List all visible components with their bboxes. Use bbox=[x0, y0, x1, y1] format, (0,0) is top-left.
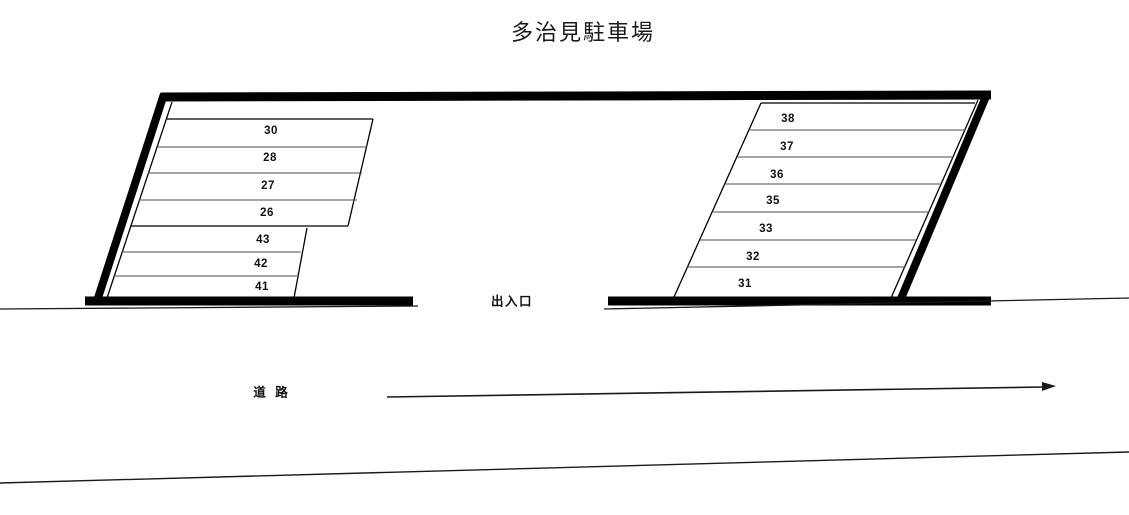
top-wall bbox=[161, 95, 991, 97]
left-block-narrow-right-edge bbox=[294, 228, 307, 298]
left-wall bbox=[97, 94, 164, 301]
stall-label: 36 bbox=[770, 169, 784, 181]
road-direction-arrow bbox=[387, 382, 1056, 397]
stall-label: 30 bbox=[264, 125, 278, 137]
stall-label: 28 bbox=[263, 152, 277, 164]
arrow-head-icon bbox=[1042, 382, 1056, 391]
road-bottom-line bbox=[0, 452, 1129, 483]
road-edge-line-left bbox=[0, 306, 418, 309]
stall-label: 38 bbox=[781, 113, 795, 125]
stall-label: 42 bbox=[254, 258, 268, 270]
right-wall bbox=[900, 94, 987, 301]
left-stall-dividers bbox=[114, 147, 367, 276]
arrow-shaft bbox=[387, 387, 1045, 397]
stall-label: 35 bbox=[766, 195, 780, 207]
stall-label: 27 bbox=[261, 180, 275, 192]
stall-label: 41 bbox=[255, 281, 269, 293]
stall-label: 26 bbox=[260, 207, 274, 219]
road-label: 道 路 bbox=[253, 382, 290, 401]
stall-label: 33 bbox=[759, 223, 773, 235]
entrance-exit-label: 出入口 bbox=[491, 291, 533, 310]
stall-label: 43 bbox=[256, 234, 270, 246]
stall-label: 31 bbox=[738, 278, 752, 290]
parking-diagram-lines bbox=[0, 0, 1129, 515]
right-block-left-edge bbox=[674, 103, 761, 297]
stall-label: 37 bbox=[780, 141, 794, 153]
page-title: 多治見駐車場 bbox=[511, 15, 655, 47]
parking-map: 多治見駐車場 出入口 道 路 30 28 27 26 43 42 41 38 3… bbox=[0, 0, 1129, 515]
stall-label: 32 bbox=[746, 251, 760, 263]
